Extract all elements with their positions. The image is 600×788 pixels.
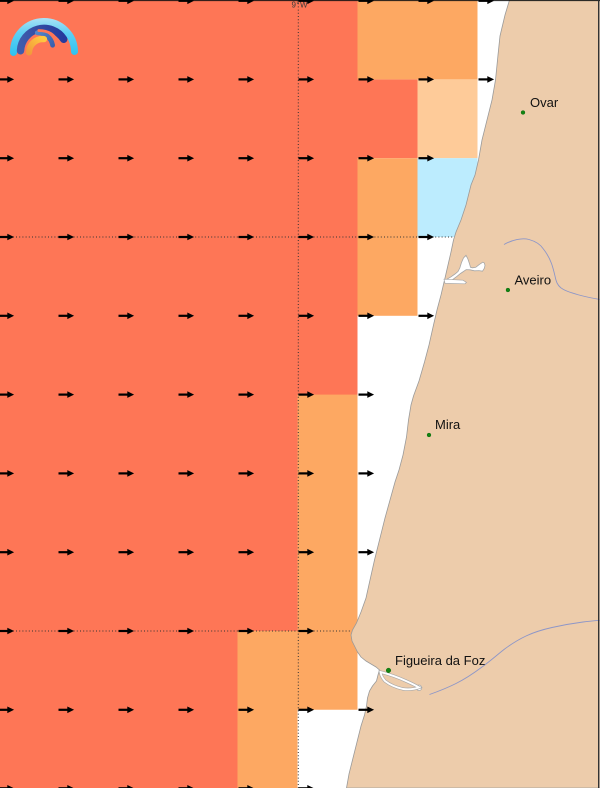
svg-text:Figueira da Foz: Figueira da Foz xyxy=(395,653,485,668)
svg-text:9°W: 9°W xyxy=(292,1,308,10)
svg-text:Ovar: Ovar xyxy=(530,95,559,110)
svg-text:Aveiro: Aveiro xyxy=(515,273,552,288)
svg-text:Mira: Mira xyxy=(435,417,461,432)
